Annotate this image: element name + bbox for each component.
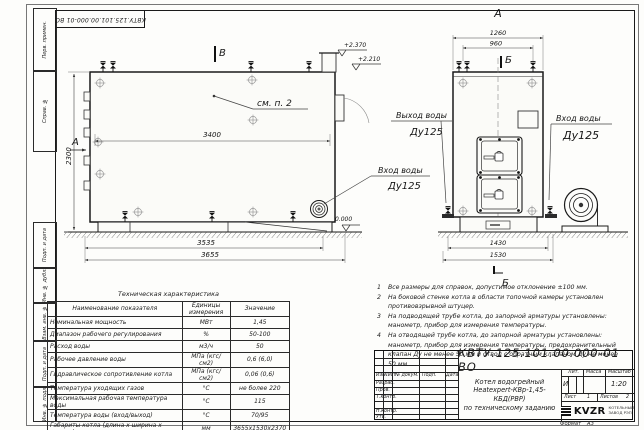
row-razrab: Разраб. — [376, 381, 395, 386]
spec-header-units: Единицы измерения — [182, 301, 230, 316]
col-data: Дата — [446, 373, 458, 378]
top-valve — [100, 62, 106, 72]
row-prov: Пров. — [376, 388, 390, 393]
mass-label: Масса — [586, 370, 601, 375]
document-name: Котел водогрейный Heatexpert-КВр-1,45-КБ… — [458, 369, 561, 421]
top-valve — [248, 62, 254, 72]
title-designation: КВТУ.125.101.00.000-01 ВО — [458, 351, 634, 369]
svg-text:Б: Б — [505, 55, 512, 66]
row-nkontr: Н.контр. — [376, 409, 397, 414]
sheets-value: 2 — [626, 395, 629, 400]
ground-hatch — [64, 233, 362, 239]
dim-1430: 1430 — [448, 236, 548, 251]
spec-row: Номинальная мощностьМВт1,45 — [48, 316, 290, 328]
note-text: На боковой стенке котла в области топочн… — [388, 293, 624, 312]
side-inlet-label: Вход воды Ду125 — [324, 166, 430, 204]
inspection-window — [518, 111, 538, 128]
kvzr-logo-text: KVZR — [574, 406, 606, 417]
top-valve — [530, 62, 536, 72]
dim-960: 960 — [463, 40, 533, 62]
blower-fan — [562, 189, 608, 233]
svg-text:1530: 1530 — [490, 251, 507, 259]
svg-text:Выход воды: Выход воды — [396, 111, 447, 120]
furnace-door-upper — [477, 137, 522, 175]
format-value: А3 — [587, 421, 594, 427]
spec-row: Габариты котла (длина х ширина х высота)… — [48, 421, 290, 430]
format-label: Формат — [560, 421, 581, 427]
lit-label: Лит. — [568, 370, 579, 375]
sheet-label: Лист — [564, 395, 576, 400]
spec-row: Температура воды (вход/выход)°С70/95 — [48, 409, 290, 421]
note-item: 3На подводящей трубе котла, до запорной … — [372, 312, 624, 331]
inlet-flange — [545, 214, 557, 218]
ground-hatch — [438, 233, 628, 239]
svg-text:+2.210: +2.210 — [358, 56, 380, 63]
company-logo-cell: KVZR КОТЕЛЬНЫЙ ЗАВОД РЭП — [561, 401, 634, 421]
title-block: Изм. Лист № докум. Подп. Дата Разраб. Пр… — [374, 350, 633, 420]
svg-text:960: 960 — [490, 40, 502, 48]
spec-table-block: Техническая характеристика Наименование … — [47, 290, 290, 430]
level-mark-2370: +2.370 — [338, 42, 367, 56]
spec-row: Диапазон рабочего регулирования%50-100 — [48, 328, 290, 340]
scale-label: Масштаб — [608, 370, 631, 375]
doc-name-line3: по техническому заданию — [464, 404, 556, 413]
svg-text:Ду125: Ду125 — [387, 181, 421, 192]
kvzr-logo-icon — [561, 406, 571, 416]
svg-text:1260: 1260 — [490, 29, 507, 37]
side-duct — [335, 95, 344, 121]
drawing-sheet: Перв. примен. Справ. № Подп. и дата Инв.… — [0, 0, 644, 430]
doc-name-line1: Котел водогрейный — [475, 378, 544, 387]
side-view: 3400 2300 3535 3655 — [64, 42, 452, 263]
level-mark-zero: 0.000 — [335, 216, 360, 231]
svg-text:Вход воды: Вход воды — [378, 166, 423, 175]
dim-3655: 3655 — [85, 234, 345, 263]
spec-table: Наименование показателя Единицы измерени… — [47, 301, 290, 430]
note-text: Все размеры для справок, допустимое откл… — [388, 283, 624, 293]
svg-text:3535: 3535 — [197, 239, 215, 247]
base-skid — [98, 222, 332, 232]
spec-row: Максимальная рабочая температура воды°С1… — [48, 394, 290, 409]
level-mark-2210: +2.210 — [352, 56, 381, 70]
front-view-label: А — [493, 7, 502, 20]
spec-row: Рабочее давление водыМПа (кгс/см2)0,6 (6… — [48, 352, 290, 367]
dim-3535: 3535 — [85, 236, 323, 251]
spec-table-title: Техническая характеристика — [47, 290, 290, 298]
row-utv: Утв. — [376, 415, 386, 420]
note-number: 2 — [372, 293, 388, 312]
svg-text:Ду125: Ду125 — [409, 127, 443, 138]
spec-header-name: Наименование показателя — [48, 301, 183, 316]
top-valve — [464, 62, 470, 72]
row-tkontr: Т.контр. — [376, 395, 397, 400]
spec-header-value: Значение — [230, 301, 289, 316]
svg-text:Ду125: Ду125 — [562, 129, 599, 142]
doc-name-line2: Heatexpert-КВр-1,45-КБД(РВР) — [458, 386, 561, 403]
sheet-value: 1 — [587, 395, 590, 400]
svg-text:2300: 2300 — [65, 147, 73, 165]
col-dokum: № докум. — [395, 373, 419, 378]
col-podp: Подп. — [422, 373, 437, 378]
top-valve — [306, 62, 312, 72]
spec-row: Гидравлическое сопротивление котлаМПа (к… — [48, 367, 290, 382]
svg-text:+2.370: +2.370 — [344, 42, 366, 49]
svg-text:Вход воды: Вход воды — [556, 114, 601, 123]
note-number: 1 — [372, 283, 388, 293]
section-mark-v: В — [215, 46, 226, 62]
outlet-flange — [442, 214, 454, 218]
svg-text:3400: 3400 — [203, 131, 221, 139]
note-number: 3 — [372, 312, 388, 331]
format-note: Формат А3 — [560, 421, 594, 427]
top-valve — [110, 62, 116, 72]
scale-value: 1:20 — [611, 380, 627, 388]
note-text: На подводящей трубе котла, до запорной а… — [388, 312, 624, 331]
door-swing-arc — [344, 98, 369, 123]
svg-text:0.000: 0.000 — [335, 216, 352, 223]
boiler-body-side — [90, 72, 335, 222]
svg-text:В: В — [219, 48, 226, 59]
top-valve — [456, 62, 462, 72]
side-flanges — [84, 92, 90, 190]
company-name: КОТЕЛЬНЫЙ ЗАВОД РЭП — [608, 406, 634, 416]
front-inlet-label: Вход воды Ду125 — [549, 114, 612, 200]
spec-header-row: Наименование показателя Единицы измерени… — [48, 301, 290, 316]
svg-text:А: А — [71, 137, 79, 148]
sheets-label: Листов — [600, 395, 618, 400]
section-mark-b-top: Б — [501, 55, 512, 68]
spec-row: Температура уходящих газов°Сне более 220 — [48, 382, 290, 394]
spec-row: Расход водым3/ч50 — [48, 340, 290, 352]
svg-text:3655: 3655 — [201, 251, 219, 259]
svg-text:см. п. 2: см. п. 2 — [257, 99, 292, 109]
note-item: 2На боковой стенке котла в области топоч… — [372, 293, 624, 312]
lit-value: И — [563, 380, 568, 388]
front-view: А — [438, 7, 628, 289]
svg-text:1430: 1430 — [490, 239, 507, 247]
furnace-door-lower — [477, 175, 522, 213]
note-item: 1Все размеры для справок, допустимое отк… — [372, 283, 624, 293]
flue-stub — [322, 53, 336, 72]
